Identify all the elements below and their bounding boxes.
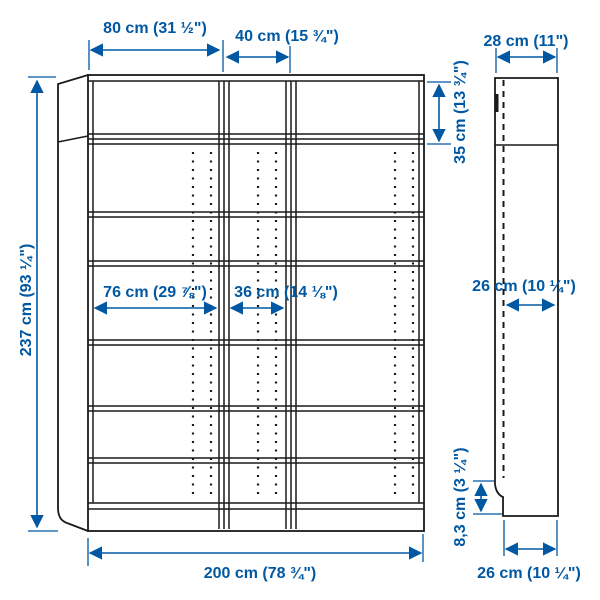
dimension-depth-bottom: 26 cm (10 ¼") [477, 520, 581, 582]
side-panel-outline [58, 75, 88, 531]
dim-label-inner-width-left: 76 cm (29 ⅞") [103, 284, 207, 301]
dimension-depth-top: 28 cm (11") [484, 33, 569, 73]
front-view-bookcase-drawing [58, 75, 424, 531]
side-view-bookcase-drawing [495, 78, 558, 516]
dim-label-extension-height: 35 cm (13 ¾") [452, 60, 469, 164]
dimension-extension-height: 35 cm (13 ¾") [427, 60, 469, 164]
side-view-outline [495, 78, 558, 516]
product-dimension-image: 80 cm (31 ½") 40 cm (15 ¾") 237 cm (93 ¼… [0, 0, 600, 600]
dim-label-depth-inner: 26 cm (10 ¼") [472, 278, 576, 295]
dimension-width-total: 200 cm (78 ¾") [88, 534, 423, 582]
side-panel-extension-seam [58, 136, 88, 142]
dim-label-width-left: 80 cm (31 ½") [103, 20, 207, 37]
dim-label-width-middle: 40 cm (15 ¾") [235, 28, 339, 45]
dimension-width-middle: 40 cm (15 ¾") [227, 28, 339, 73]
dim-label-inner-width-middle: 36 cm (14 ⅛") [234, 284, 338, 301]
dim-label-plinth-height: 8,3 cm (3 ¼") [452, 447, 469, 546]
dim-label-depth-top: 28 cm (11") [484, 33, 569, 50]
dimension-height-total: 237 cm (93 ¼") [18, 77, 58, 531]
dim-label-height-total: 237 cm (93 ¼") [18, 244, 35, 357]
dimension-width-left: 80 cm (31 ½") [89, 20, 223, 72]
dim-label-depth-bottom: 26 cm (10 ¼") [477, 565, 581, 582]
dimension-diagram: 80 cm (31 ½") 40 cm (15 ¾") 237 cm (93 ¼… [0, 0, 600, 600]
dim-label-width-total: 200 cm (78 ¾") [204, 565, 317, 582]
